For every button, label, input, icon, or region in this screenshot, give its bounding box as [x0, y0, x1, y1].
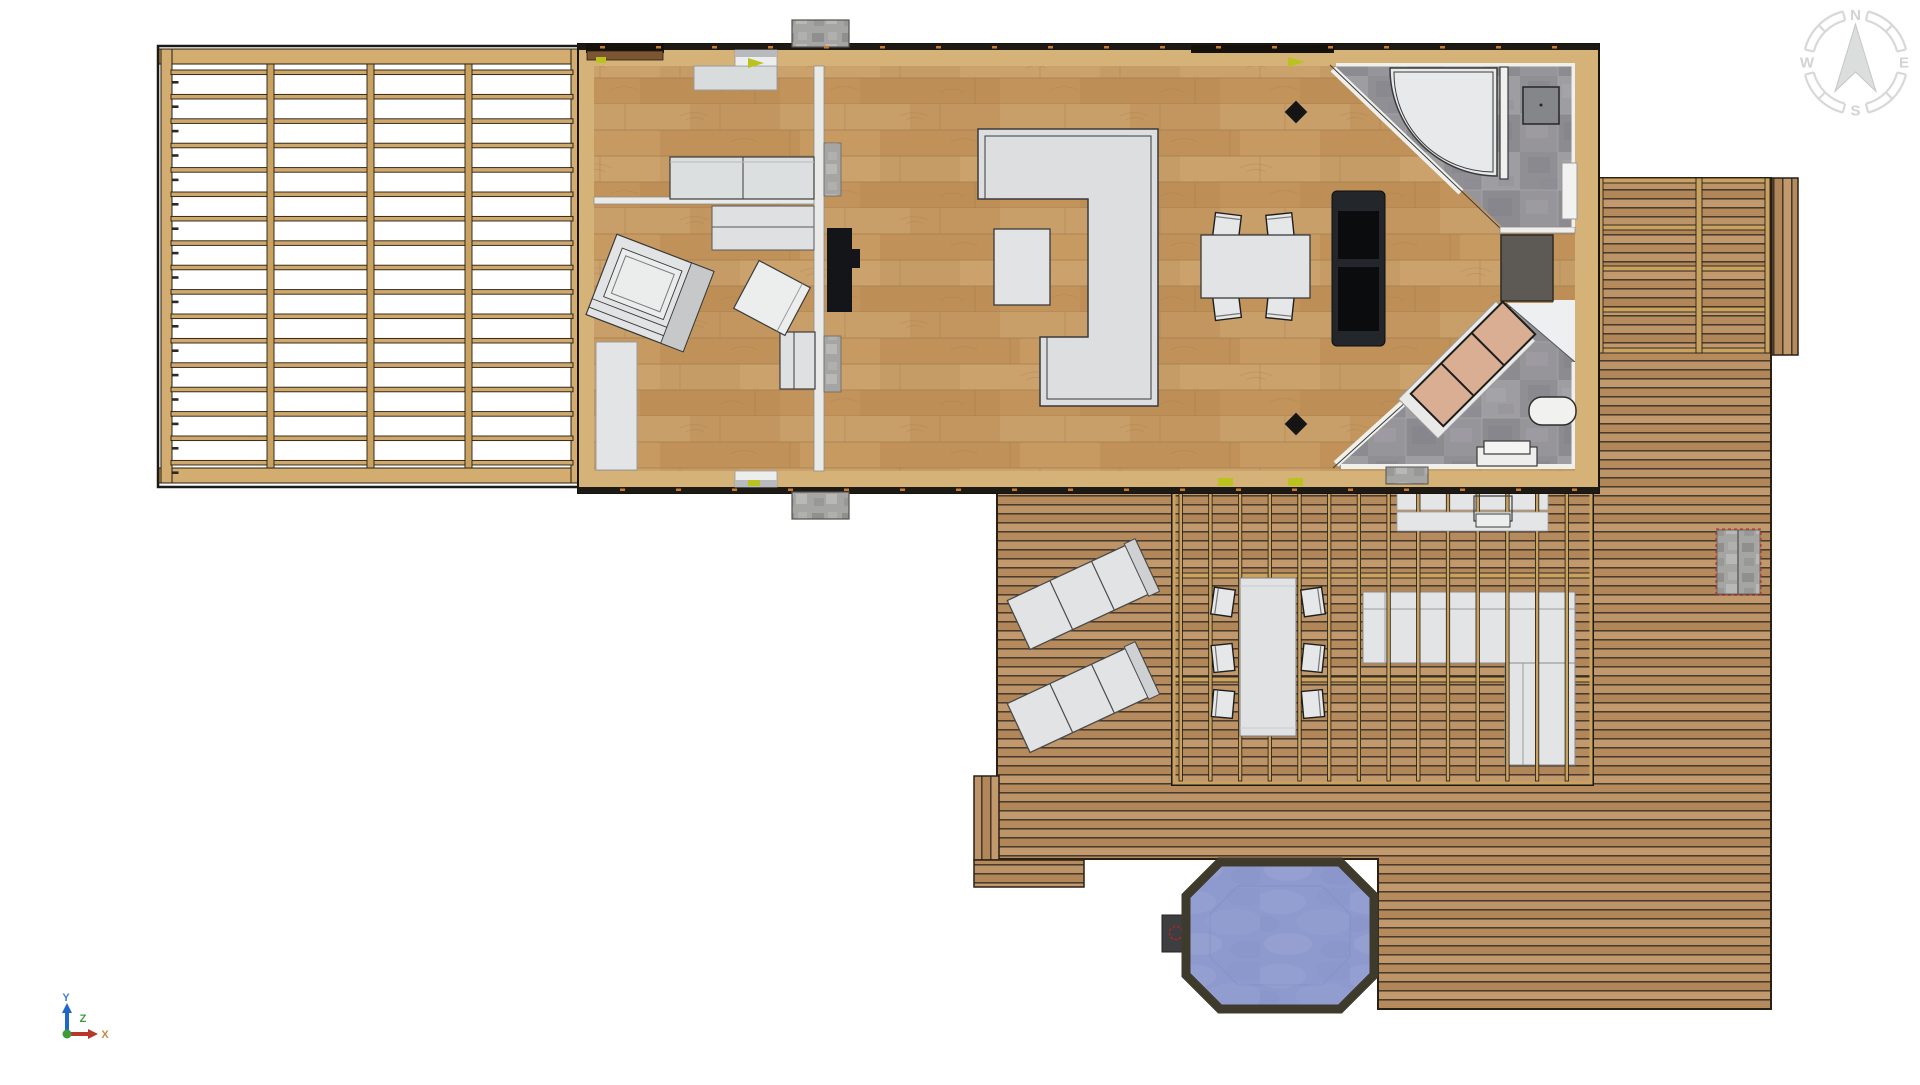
svg-text:Z: Z: [80, 1013, 87, 1025]
svg-text:E: E: [1899, 55, 1909, 72]
svg-text:S: S: [1850, 103, 1860, 120]
svg-text:Y: Y: [62, 992, 70, 1004]
svg-text:X: X: [101, 1029, 109, 1041]
svg-text:N: N: [1850, 7, 1861, 24]
svg-text:W: W: [1800, 55, 1815, 72]
